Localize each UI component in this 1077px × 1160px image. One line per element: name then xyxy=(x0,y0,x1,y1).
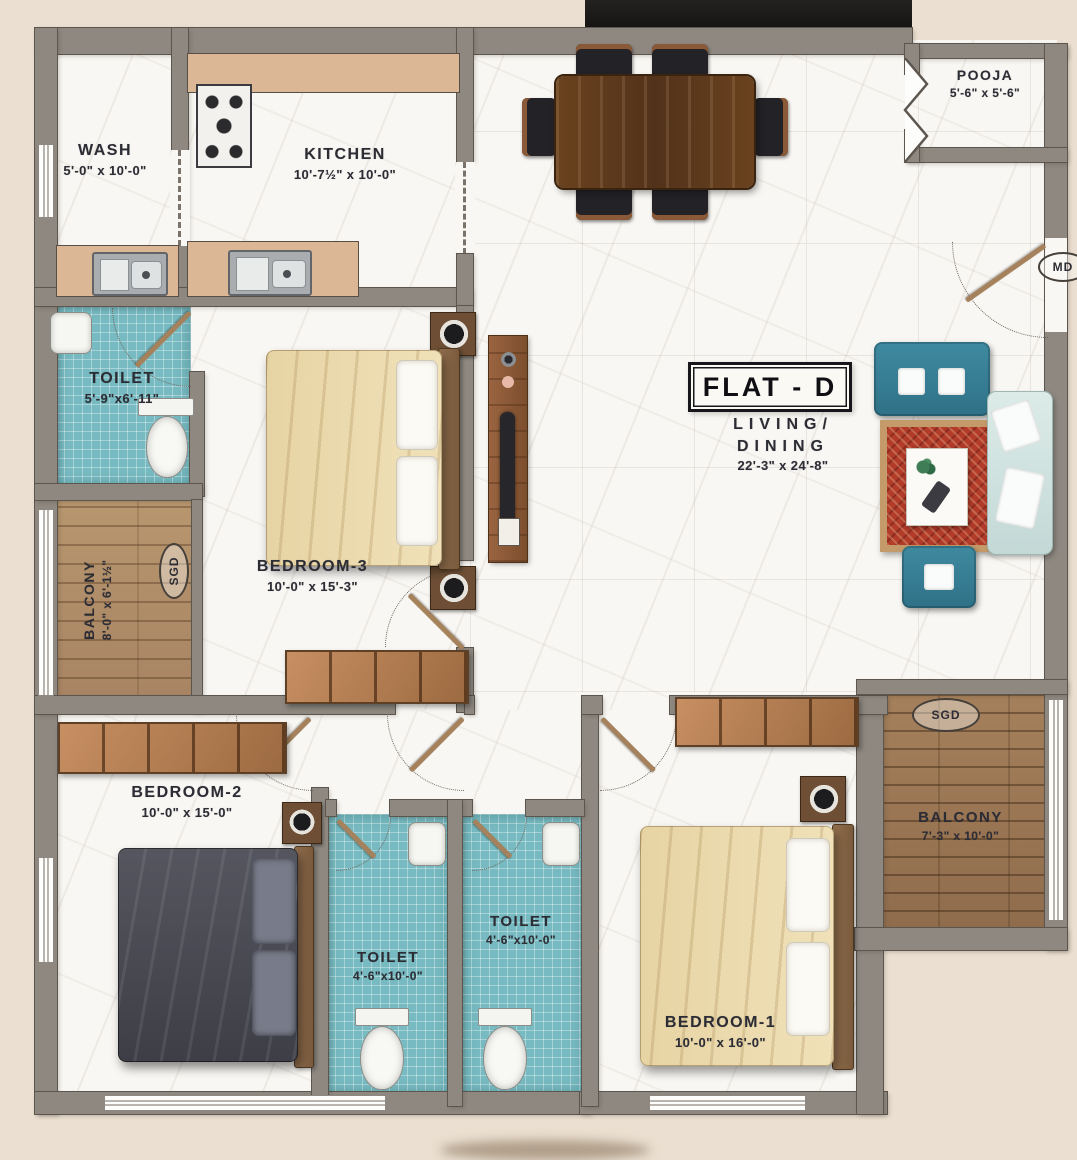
wall-toilet2-top-stub xyxy=(462,800,472,816)
opening-wash-dash xyxy=(178,150,181,246)
toilet-top-basin xyxy=(50,312,92,354)
wall-toilet-balcony xyxy=(35,484,202,500)
bottom-shadow xyxy=(440,1140,650,1160)
plant-decor xyxy=(916,458,936,478)
opening-kitchen-dash xyxy=(463,162,466,254)
bedroom1-label: BEDROOM-1 10'-0" x 16'-0" xyxy=(613,1012,828,1051)
bedroom2-pillow xyxy=(252,950,296,1036)
bedroom2-wardrobe xyxy=(58,722,287,774)
armchair-cushion xyxy=(924,564,954,590)
wall-bedroom1-left xyxy=(582,696,598,1106)
lamp xyxy=(808,783,840,815)
lamp xyxy=(438,572,470,604)
bedroom2-label: BEDROOM-2 10'-0" x 15'-0" xyxy=(82,782,292,821)
toilet1-label: TOILET 4'-6"x10'-0" xyxy=(322,948,454,984)
dining-chair xyxy=(576,184,632,220)
tv-speaker xyxy=(501,352,516,367)
bedroom3-nightstand-bottom xyxy=(430,566,476,610)
dining-chair xyxy=(576,44,632,80)
wall-balcony-right-bottom xyxy=(855,928,1067,950)
wall-toilet1-top-stub xyxy=(326,800,336,816)
dining-chair xyxy=(754,98,788,156)
dining-chair xyxy=(652,44,708,80)
toilet2-label: TOILET 4'-6"x10'-0" xyxy=(455,912,587,948)
bedroom3-pillow xyxy=(396,360,438,450)
lamp xyxy=(438,318,470,350)
toilet-top-label: TOILET 5'-9"x6'-11" xyxy=(50,368,194,407)
window-bedroom2-bottom xyxy=(105,1096,385,1110)
bedroom3-label: BEDROOM-3 10'-0" x 15'-3" xyxy=(210,556,415,595)
toilet1-basin xyxy=(408,822,446,866)
pooja-label: POOJA 5'-6" x 5'-6" xyxy=(915,66,1055,101)
sofa-cushion xyxy=(898,368,925,395)
toilet2-wc-bowl xyxy=(483,1026,527,1090)
sofa-loveseat xyxy=(874,342,990,416)
wall-kitchen-right-bottom xyxy=(457,254,473,306)
kitchen-sink xyxy=(228,250,312,296)
bedroom3-wardrobe xyxy=(285,650,469,704)
dining-chair xyxy=(652,184,708,220)
bedroom1-nightstand-top xyxy=(800,776,846,822)
gas-stove xyxy=(196,84,252,168)
toilet-top-wc-bowl xyxy=(146,416,188,478)
toilet2-basin xyxy=(542,822,580,866)
toilet1-wc-bowl xyxy=(360,1026,404,1090)
bedroom1-pillow xyxy=(786,838,830,932)
balcony-left-label: BALCONY 8'-0" x 6'-1½" xyxy=(18,520,178,680)
bedroom1-headboard xyxy=(832,824,854,1070)
window-balcony-right xyxy=(1049,700,1063,920)
sofa-cushion xyxy=(938,368,965,395)
dining-chair xyxy=(522,98,556,156)
tv-decor xyxy=(502,376,514,388)
wall-balcony-bedroom3 xyxy=(192,500,202,712)
living-dining-label: LIVING/ DINING 22'-3" x 24'-8" xyxy=(688,414,878,475)
bedroom3-pillow xyxy=(396,456,438,546)
wall-bedroom1-top-stub xyxy=(582,696,602,714)
toilet2-wc-tank xyxy=(478,1008,532,1026)
wall-kitchen-right-top xyxy=(457,28,473,162)
wall-bedroom1-right xyxy=(857,688,883,1114)
kitchen-label: KITCHEN 10'-7½" x 10'-0" xyxy=(250,144,440,183)
bedroom2-pillow xyxy=(252,858,296,944)
window-bedroom1-bottom xyxy=(650,1096,805,1110)
balcony-right-label: BALCONY 7'-3" x 10'-0" xyxy=(878,808,1043,844)
dining-table xyxy=(556,76,754,188)
floor-plan: MD xyxy=(0,0,1077,1152)
toilet1-wc-tank xyxy=(355,1008,409,1026)
wall-pooja-top xyxy=(905,44,1067,58)
wash-label: WASH 5'-0" x 10'-0" xyxy=(40,140,170,179)
sliding-door-right-label: SGD xyxy=(912,698,980,732)
wall-toilet1-top xyxy=(390,800,450,816)
wall-toilet2-top xyxy=(526,800,584,816)
wall-balcony-right-top xyxy=(857,680,1067,694)
wall-top xyxy=(35,28,912,54)
flat-label-box: FLAT - D xyxy=(688,362,852,412)
tv-frame xyxy=(498,518,520,546)
wash-sink xyxy=(92,252,168,296)
bedroom1-wardrobe xyxy=(675,697,859,747)
window-bedroom2-left xyxy=(39,858,53,962)
lamp xyxy=(288,808,316,836)
